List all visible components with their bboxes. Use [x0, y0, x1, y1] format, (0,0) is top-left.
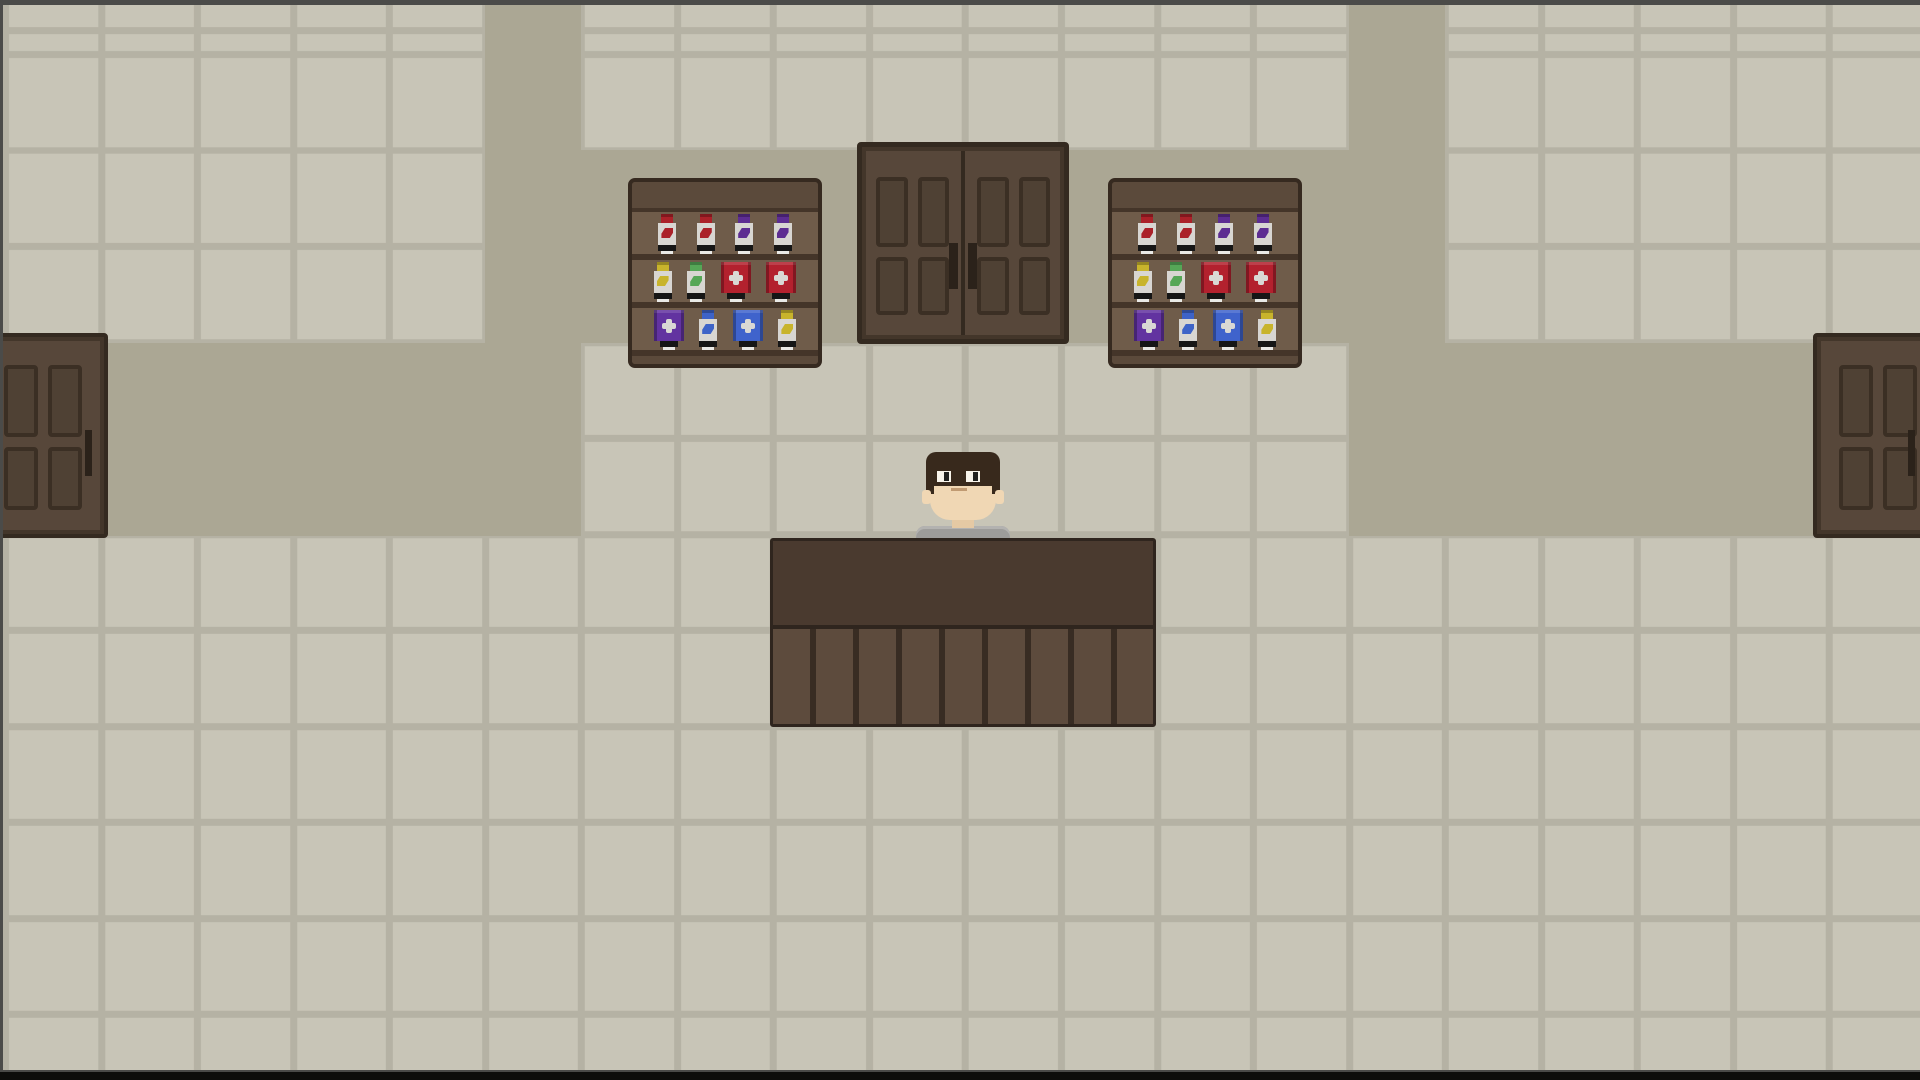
potion-body: [774, 223, 792, 245]
door-panel: [48, 447, 82, 510]
potion-cap: [700, 214, 712, 223]
potion-cap: [1137, 262, 1149, 271]
potion-body: [699, 319, 717, 341]
shelf-base: [1112, 356, 1298, 364]
item-tag: [1137, 299, 1149, 302]
item-tag: [1143, 347, 1155, 350]
potion-body: [1177, 223, 1195, 245]
potion-label: [1137, 276, 1149, 286]
shopkeeper-head: [926, 452, 1000, 522]
door-panel: [977, 177, 1009, 247]
door-panel: [1839, 365, 1873, 437]
medicine-box-body: [721, 262, 751, 293]
door-panel: [1019, 177, 1051, 247]
potion-label: [702, 324, 714, 334]
potion-cap: [661, 214, 673, 223]
potion-label: [1170, 276, 1182, 286]
door-panel: [1839, 447, 1873, 510]
potion-body: [687, 271, 705, 293]
potion-label: [1182, 324, 1194, 334]
shelf-row: [632, 212, 818, 260]
shopkeeper-eye: [937, 468, 951, 482]
shelf-item-potion-red: [1138, 214, 1156, 254]
potion-cap: [690, 262, 702, 271]
cross-emblem-icon: [1225, 319, 1231, 333]
shop-counter-front: [773, 625, 1153, 724]
item-tag: [1182, 347, 1194, 350]
potion-label: [690, 276, 702, 286]
shelf-item-medicine-red: [721, 262, 751, 302]
item-tag: [1261, 347, 1273, 350]
item-tag: [781, 347, 793, 350]
shelf-item-medicine-red: [1246, 262, 1276, 302]
potion-body: [658, 223, 676, 245]
potion-body: [1138, 223, 1156, 245]
shelf-item-potion-yellow: [1258, 310, 1276, 350]
item-tag: [738, 251, 750, 254]
cross-emblem-icon: [1258, 271, 1264, 285]
shelf-item-medicine-purple: [1134, 310, 1164, 350]
item-tag: [700, 251, 712, 254]
shelf-item-potion-yellow: [654, 262, 672, 302]
potion-body: [697, 223, 715, 245]
door-panel: [876, 257, 908, 315]
shelf-item-potion-yellow: [1134, 262, 1152, 302]
potion-body: [654, 271, 672, 293]
item-tag: [1180, 251, 1192, 254]
medicine-box-body: [1201, 262, 1231, 293]
screen-border-left: [0, 0, 3, 1080]
door-panel: [1019, 257, 1051, 315]
item-tag: [1255, 299, 1267, 302]
door-panel: [876, 177, 908, 247]
item-tag: [1222, 347, 1234, 350]
shelf-row: [1112, 260, 1298, 308]
cross-emblem-icon: [778, 271, 784, 285]
door-panel: [918, 257, 950, 315]
shelf-item-medicine-red: [1201, 262, 1231, 302]
shelf-item-medicine-blue: [733, 310, 763, 350]
shelf-row: [1112, 308, 1298, 356]
potion-label: [777, 228, 789, 238]
potion-label: [1261, 324, 1273, 334]
cross-emblem-icon: [745, 319, 751, 333]
shelf-item-potion-red: [697, 214, 715, 254]
item-tag: [1141, 251, 1153, 254]
potion-cap: [702, 310, 714, 319]
shopkeeper-eye: [966, 468, 980, 482]
shelf-item-potion-blue: [1179, 310, 1197, 350]
potion-body: [1134, 271, 1152, 293]
item-tag: [657, 299, 669, 302]
door-handle: [1908, 430, 1915, 476]
item-tag: [1210, 299, 1222, 302]
shelf-top-cap: [632, 182, 818, 212]
potion-label: [738, 228, 750, 238]
door-panel: [48, 365, 82, 437]
door-handle-right: [968, 243, 977, 289]
door-leaf-right: [963, 147, 1064, 339]
walkway-vertical-right: [1349, 0, 1445, 536]
door-panel: [918, 177, 950, 247]
item-shelf-left[interactable]: [628, 178, 822, 368]
potion-body: [1179, 319, 1197, 341]
shelf-item-medicine-blue: [1213, 310, 1243, 350]
cross-emblem-icon: [1213, 271, 1219, 285]
item-tag: [1170, 299, 1182, 302]
item-tag: [1257, 251, 1269, 254]
cross-emblem-icon: [1146, 319, 1152, 333]
door-panel: [977, 257, 1009, 315]
shopkeeper-ear: [922, 490, 931, 504]
shelf-row: [632, 308, 818, 356]
shelf-item-potion-red: [1177, 214, 1195, 254]
medicine-box-body: [733, 310, 763, 341]
shelf-item-potion-green: [687, 262, 705, 302]
potion-cap: [1180, 214, 1192, 223]
shopkeeper-mouth: [951, 488, 967, 491]
cross-emblem-icon: [666, 319, 672, 333]
medicine-box-body: [766, 262, 796, 293]
potion-label: [700, 228, 712, 238]
door-handle-left: [949, 243, 958, 289]
potion-body: [735, 223, 753, 245]
item-tag: [730, 299, 742, 302]
potion-body: [1167, 271, 1185, 293]
potion-body: [778, 319, 796, 341]
item-tag: [777, 251, 789, 254]
medicine-box-body: [1134, 310, 1164, 341]
potion-cap: [1257, 214, 1269, 223]
potion-cap: [657, 262, 669, 271]
shelf-item-potion-green: [1167, 262, 1185, 302]
potion-label: [1218, 228, 1230, 238]
shop-counter: [770, 538, 1156, 727]
door-panel: [4, 447, 38, 510]
medicine-box-body: [1246, 262, 1276, 293]
screen-border-top: [0, 0, 1920, 5]
shelf-item-potion-red: [658, 214, 676, 254]
door-panel: [1883, 365, 1917, 437]
exit-door-left[interactable]: [0, 333, 108, 538]
shelf-item-potion-purple: [1254, 214, 1272, 254]
item-tag: [702, 347, 714, 350]
item-tag: [775, 299, 787, 302]
potion-body: [1215, 223, 1233, 245]
shelf-item-potion-purple: [735, 214, 753, 254]
walkway-vertical-left: [485, 0, 581, 536]
shopkeeper[interactable]: [916, 452, 1010, 542]
potion-label: [1257, 228, 1269, 238]
potion-cap: [738, 214, 750, 223]
potion-cap: [1182, 310, 1194, 319]
potion-cap: [1170, 262, 1182, 271]
door-handle: [85, 430, 92, 476]
potion-cap: [781, 310, 793, 319]
door-leaf-left: [862, 147, 963, 339]
shelf-base: [632, 356, 818, 364]
potion-label: [657, 276, 669, 286]
shelf-row: [1112, 212, 1298, 260]
potion-body: [1254, 223, 1272, 245]
item-tag: [742, 347, 754, 350]
shelf-item-potion-purple: [774, 214, 792, 254]
door-seam: [961, 151, 965, 335]
potion-label: [781, 324, 793, 334]
item-tag: [690, 299, 702, 302]
shelf-item-potion-yellow: [778, 310, 796, 350]
potion-label: [1180, 228, 1192, 238]
medicine-box-body: [654, 310, 684, 341]
potion-cap: [1261, 310, 1273, 319]
shelf-item-medicine-purple: [654, 310, 684, 350]
medicine-box-body: [1213, 310, 1243, 341]
entrance-double-door[interactable]: [857, 142, 1069, 344]
potion-body: [1258, 319, 1276, 341]
potion-label: [661, 228, 673, 238]
door-panel: [4, 365, 38, 437]
shelf-item-potion-blue: [699, 310, 717, 350]
exit-door-right[interactable]: [1813, 333, 1920, 538]
cross-emblem-icon: [733, 271, 739, 285]
shelf-item-potion-purple: [1215, 214, 1233, 254]
shelf-item-medicine-red: [766, 262, 796, 302]
shelf-top-cap: [1112, 182, 1298, 212]
door-panels: [1817, 337, 1920, 534]
item-tag: [1218, 251, 1230, 254]
potion-cap: [1218, 214, 1230, 223]
shopkeeper-ear: [995, 490, 1004, 504]
potion-cap: [1141, 214, 1153, 223]
item-tag: [661, 251, 673, 254]
item-tag: [663, 347, 675, 350]
potion-cap: [777, 214, 789, 223]
item-shelf-right[interactable]: [1108, 178, 1302, 368]
shelf-row: [632, 260, 818, 308]
game-viewport: [0, 0, 1920, 1080]
potion-label: [1141, 228, 1153, 238]
screen-border-bottom: [0, 1070, 1920, 1080]
